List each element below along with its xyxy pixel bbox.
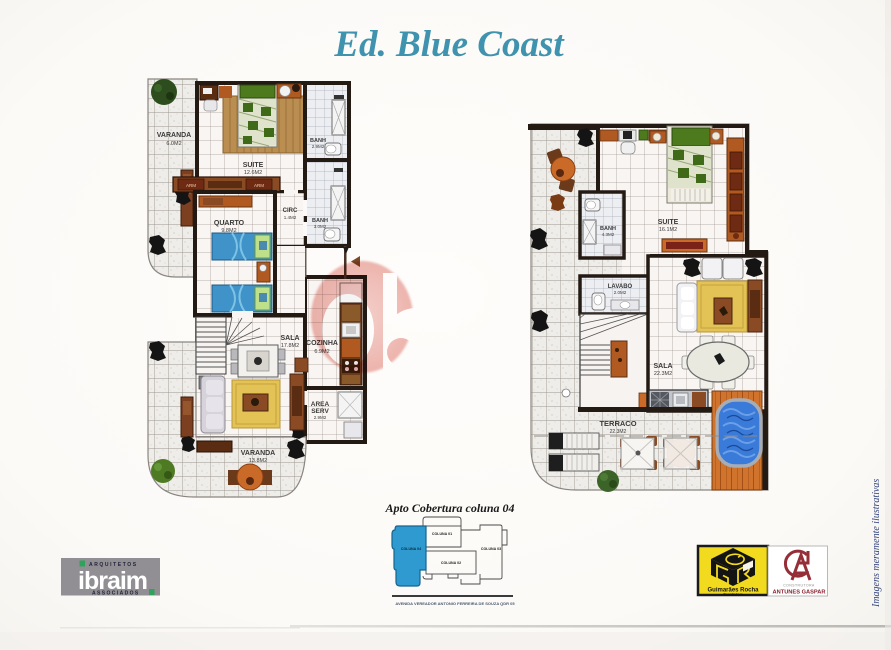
svg-text:COLUNA 01: COLUNA 01 — [432, 532, 452, 536]
svg-text:CIRC: CIRC — [283, 208, 298, 214]
svg-text:SERV: SERV — [311, 408, 329, 415]
svg-text:12.6M2: 12.6M2 — [244, 170, 262, 176]
svg-text:17.8M2: 17.8M2 — [281, 343, 299, 349]
svg-text:2.9M2: 2.9M2 — [314, 415, 327, 420]
svg-text:SUITE: SUITE — [658, 219, 679, 226]
svg-text:TERRACO: TERRACO — [599, 419, 636, 428]
svg-text:SALA: SALA — [280, 335, 299, 342]
svg-text:1.4M2: 1.4M2 — [284, 215, 297, 220]
svg-text:ANTUNES GASPAR: ANTUNES GASPAR — [773, 590, 826, 596]
svg-text:SALA: SALA — [653, 363, 672, 370]
svg-text:ASSOCIADOS: ASSOCIADOS — [92, 591, 140, 597]
svg-text:COLUNA 04: COLUNA 04 — [401, 547, 421, 551]
svg-text:ARM: ARM — [254, 183, 264, 188]
svg-text:Construtora: Construtora — [723, 593, 743, 597]
svg-text:3.0M2: 3.0M2 — [314, 224, 327, 229]
svg-text:22.3M2: 22.3M2 — [654, 371, 672, 377]
svg-text:ARM: ARM — [186, 183, 196, 188]
svg-text:CONSTRUTORA: CONSTRUTORA — [783, 584, 815, 588]
svg-text:AVENIDA VEREADOR ANTONIO FERRE: AVENIDA VEREADOR ANTONIO FERREIRA DE SOU… — [395, 601, 515, 606]
svg-text:COLUNA 02: COLUNA 02 — [441, 561, 461, 565]
svg-text:SUITE: SUITE — [243, 162, 264, 169]
svg-text:QUARTO: QUARTO — [214, 220, 245, 227]
svg-text:Imagens meramente ilustrativas: Imagens meramente ilustrativas — [871, 479, 882, 608]
svg-text:VARANDA: VARANDA — [241, 450, 275, 457]
svg-text:6.0M2: 6.0M2 — [166, 141, 181, 147]
svg-text:Ed. Blue Coast: Ed. Blue Coast — [333, 24, 565, 65]
svg-text:Apto Cobertura coluna 04: Apto Cobertura coluna 04 — [384, 501, 514, 515]
svg-text:VARANDA: VARANDA — [157, 132, 191, 139]
svg-text:16.1M2: 16.1M2 — [659, 227, 677, 233]
svg-text:COLUNA 03: COLUNA 03 — [481, 547, 501, 551]
svg-text:2.9M2: 2.9M2 — [312, 144, 325, 149]
svg-text:4.3M2: 4.3M2 — [602, 232, 615, 237]
svg-text:2.0M2: 2.0M2 — [614, 290, 627, 295]
svg-text:22.3M2: 22.3M2 — [610, 429, 627, 435]
svg-text:13.8M2: 13.8M2 — [249, 458, 267, 464]
svg-text:AREA: AREA — [311, 401, 330, 408]
